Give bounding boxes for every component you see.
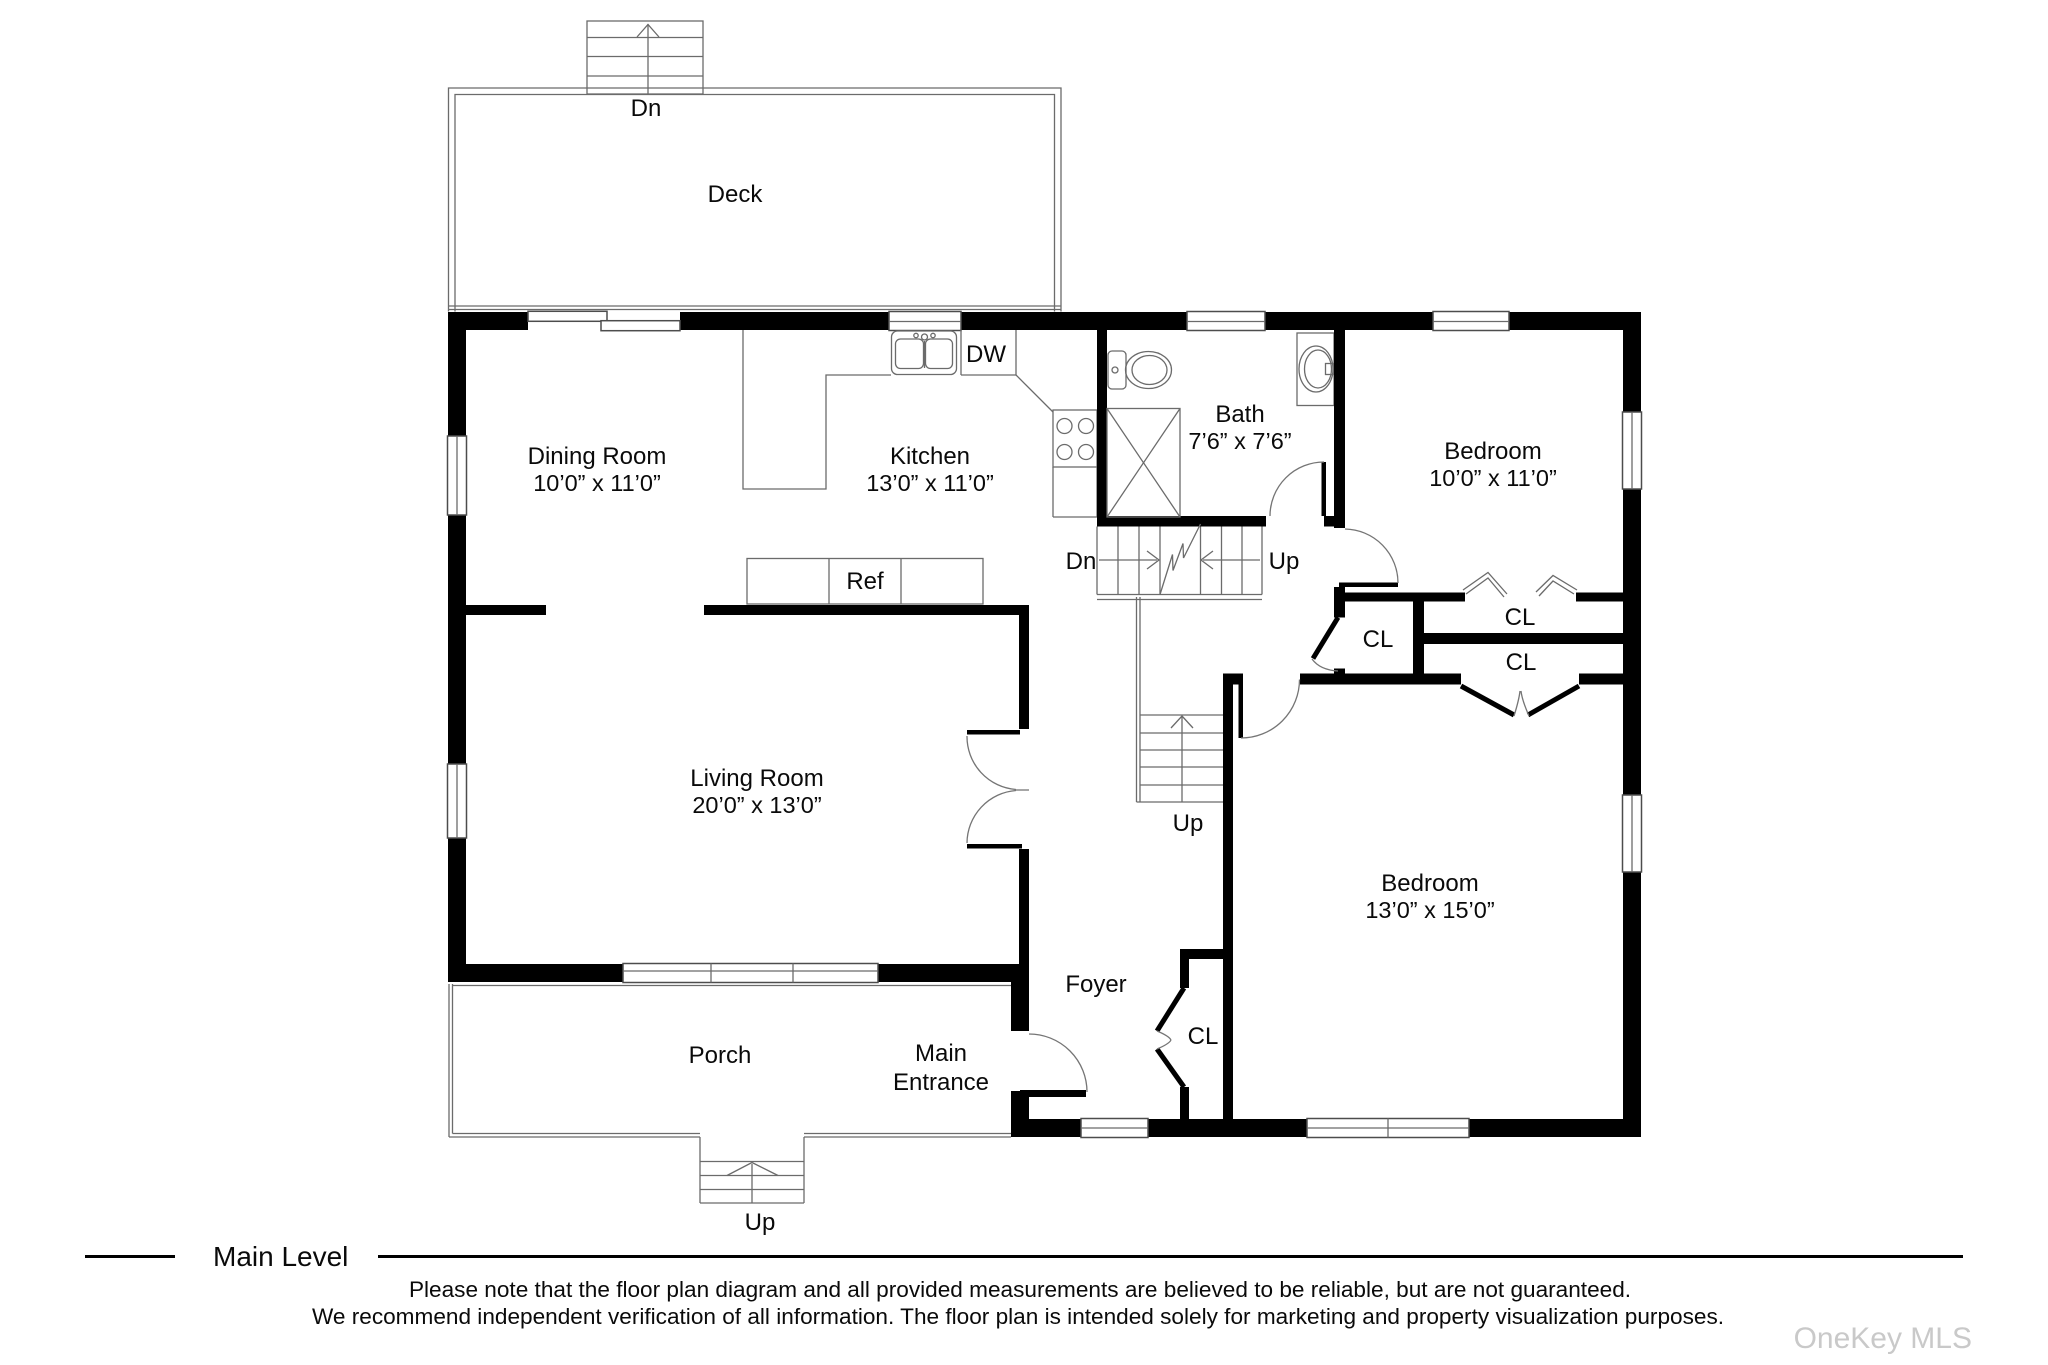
svg-text:DW: DW [966,341,1006,368]
svg-text:10’0” x 11’0”: 10’0” x 11’0” [533,470,661,496]
svg-text:CL: CL [1506,649,1537,676]
svg-text:Bedroom: Bedroom [1444,438,1541,465]
svg-text:Dining Room: Dining Room [528,443,667,470]
svg-text:Entrance: Entrance [893,1069,989,1096]
svg-text:Foyer: Foyer [1065,971,1126,998]
svg-text:Bath: Bath [1215,401,1264,428]
svg-text:10’0” x 11’0”: 10’0” x 11’0” [1429,465,1557,491]
svg-text:Dn: Dn [631,95,662,122]
svg-text:Up: Up [1269,548,1300,575]
svg-text:Bedroom: Bedroom [1381,870,1478,897]
svg-text:Living Room: Living Room [690,765,823,792]
svg-text:OneKey MLS: OneKey MLS [1794,1322,1972,1355]
svg-text:13’0” x 11’0”: 13’0” x 11’0” [866,470,994,496]
svg-text:Porch: Porch [689,1042,752,1069]
svg-text:7’6” x 7’6”: 7’6” x 7’6” [1188,428,1291,454]
svg-text:Deck: Deck [708,181,764,208]
svg-text:Kitchen: Kitchen [890,443,970,470]
svg-text:Main: Main [915,1040,967,1067]
svg-text:Up: Up [745,1209,776,1236]
svg-text:Main Level: Main Level [213,1241,348,1272]
svg-text:CL: CL [1505,604,1536,631]
svg-text:20’0” x 13’0”: 20’0” x 13’0” [692,792,821,818]
svg-text:Ref: Ref [846,568,884,595]
svg-text:13’0” x 15’0”: 13’0” x 15’0” [1365,897,1494,923]
svg-text:Up: Up [1173,810,1204,837]
svg-text:We recommend independent verif: We recommend independent verification of… [312,1304,1724,1329]
svg-text:Dn: Dn [1066,548,1097,575]
svg-text:CL: CL [1363,626,1394,653]
svg-text:CL: CL [1188,1023,1219,1050]
svg-text:Please note that the floor pla: Please note that the floor plan diagram … [409,1277,1631,1302]
